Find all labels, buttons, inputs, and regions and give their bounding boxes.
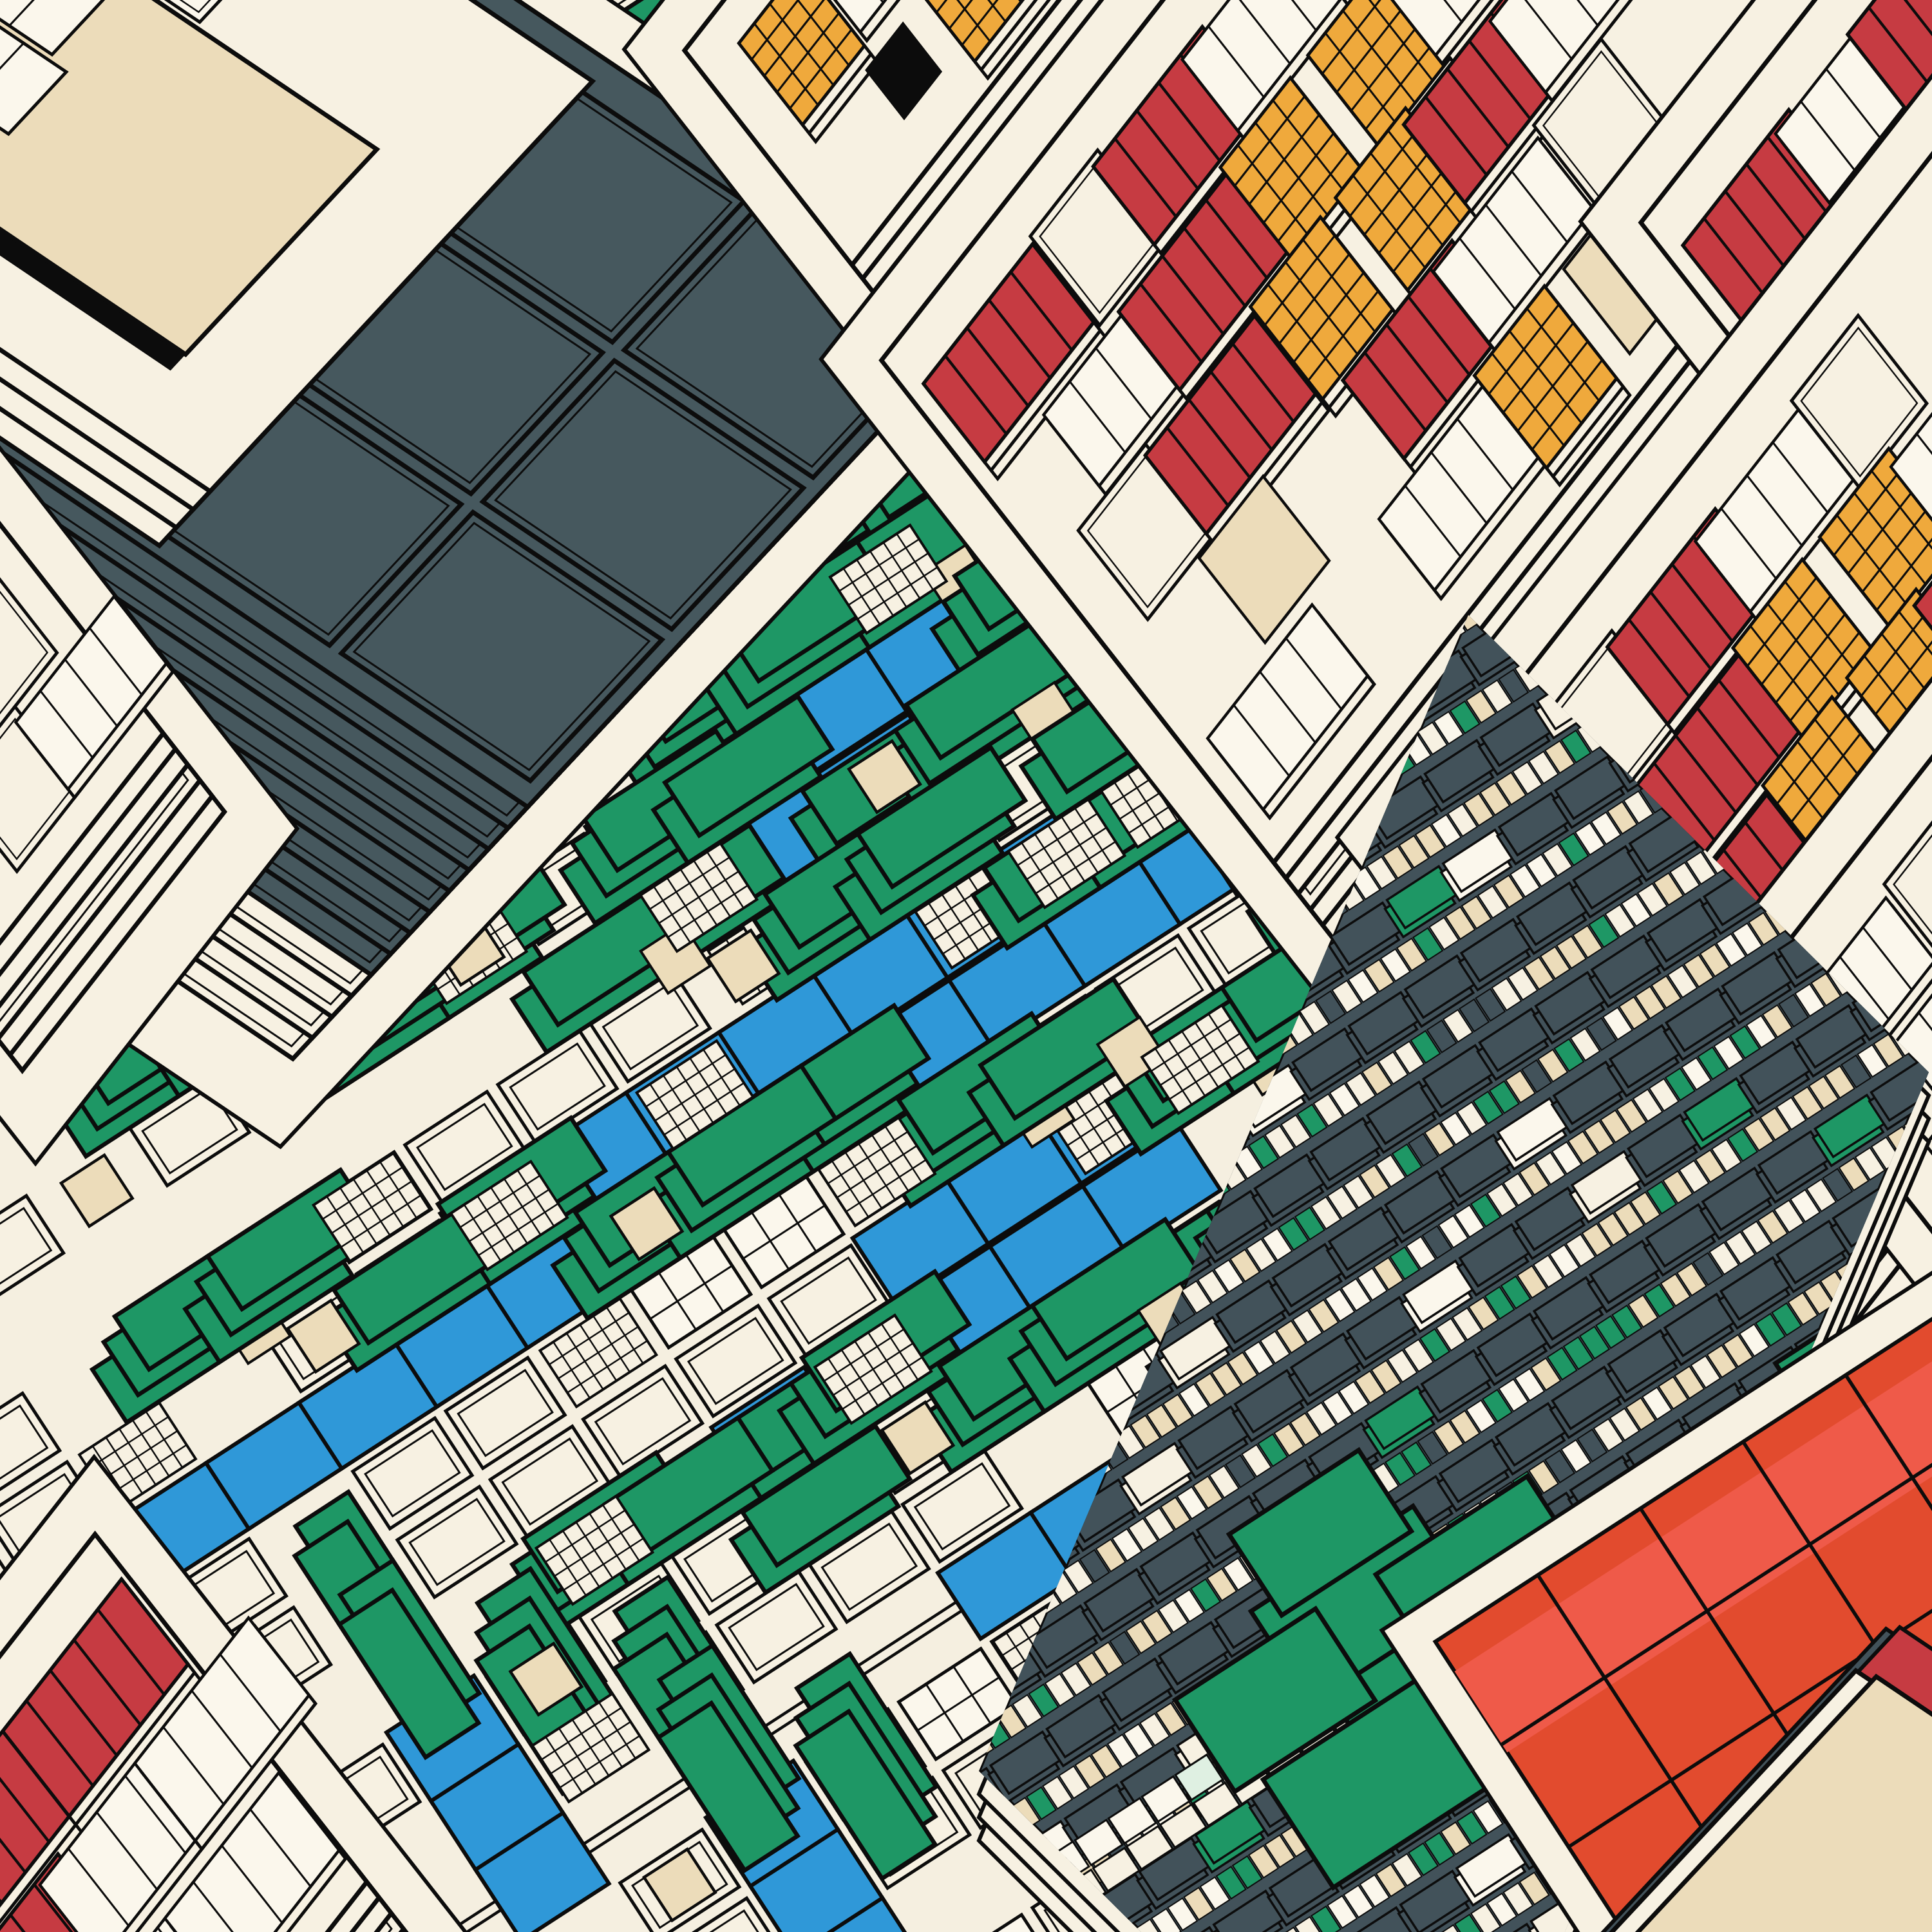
art-canvas — [0, 0, 1932, 1932]
artwork-page — [0, 0, 1932, 1932]
generative-artwork — [0, 0, 1932, 1932]
